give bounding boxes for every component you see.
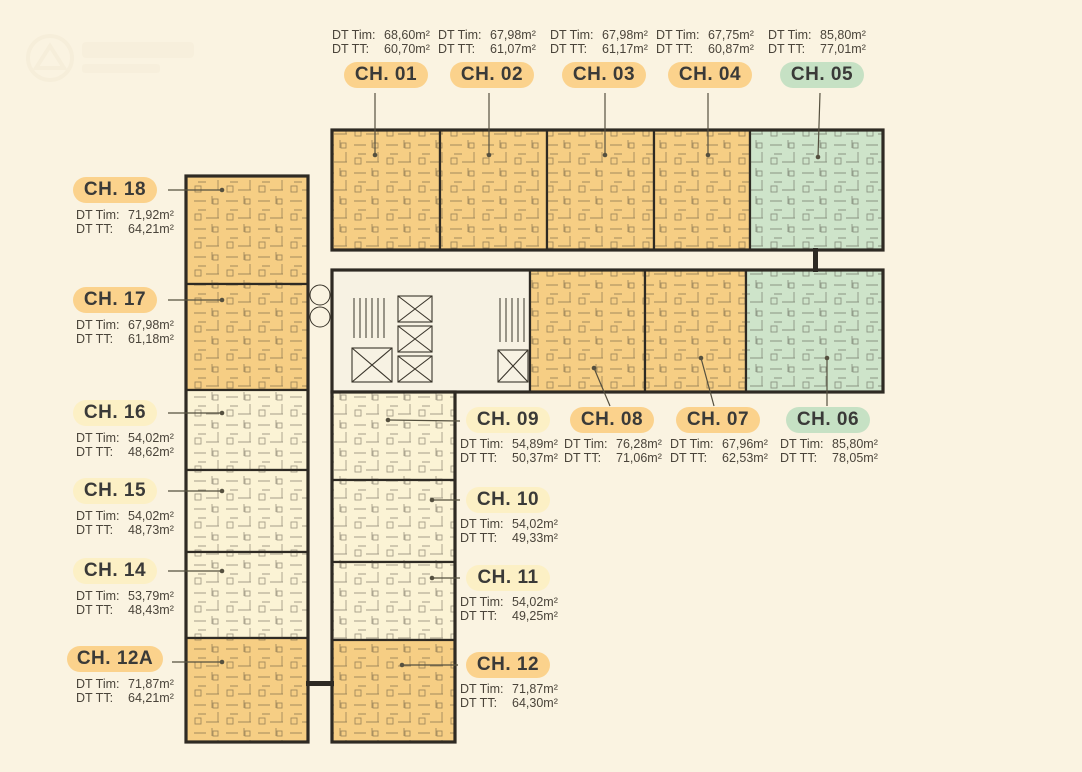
area-key: DT Tim: [76,677,128,691]
unit-areas: DT Tim:54,02m² DT TT:48,62m² [76,431,168,459]
wing-top [332,130,883,250]
area-key: DT TT: [76,603,128,617]
area-key: DT Tim: [780,437,832,451]
area-value: 67,75m² [708,28,754,42]
unit-areas: DT Tim:71,87m² DT TT:64,21m² [76,677,168,705]
unit-areas: DT Tim:54,02m² DT TT:49,25m² [460,595,558,623]
unit-badge-ch04[interactable]: CH. 04 [668,62,752,88]
unit-areas: DT Tim:67,98m² DT TT:61,07m² [438,28,548,56]
unit-label-ch14: CH. 14 DT Tim:53,79m² DT TT:48,43m² [62,558,168,617]
unit-badge-ch17[interactable]: CH. 17 [73,287,157,313]
unit-areas: DT Tim:71,92m² DT TT:64,21m² [76,208,168,236]
area-key: DT TT: [438,42,490,56]
area-value: 64,21m² [128,691,174,705]
area-key: DT TT: [460,696,512,710]
area-key: DT Tim: [656,28,708,42]
area-key: DT Tim: [768,28,820,42]
area-key: DT TT: [76,691,128,705]
area-key: DT Tim: [76,509,128,523]
unit-label-ch02: DT Tim:67,98m² DT TT:61,07m² CH. 02 [436,28,548,88]
area-value: 61,07m² [490,42,536,56]
unit-badge-ch09[interactable]: CH. 09 [466,407,550,433]
unit-areas: DT Tim:67,98m² DT TT:61,18m² [76,318,168,346]
area-key: DT Tim: [460,517,512,531]
area-key: DT TT: [670,451,722,465]
unit-label-ch09: CH. 09 DT Tim:54,89m² DT TT:50,37m² [458,407,558,465]
unit-badge-ch16[interactable]: CH. 16 [73,400,157,426]
floorplan-page: DT Tim:68,60m² DT TT:60,70m² CH. 01 DT T… [0,0,1082,772]
unit-badge-ch12[interactable]: CH. 12 [466,652,550,678]
area-value: 67,98m² [602,28,648,42]
wing-left [186,176,308,742]
unit-label-ch18: CH. 18 DT Tim:71,92m² DT TT:64,21m² [62,177,168,236]
area-value: 48,73m² [128,523,174,537]
area-value: 54,89m² [512,437,558,451]
unit-badge-ch14[interactable]: CH. 14 [73,558,157,584]
area-value: 48,62m² [128,445,174,459]
area-value: 53,79m² [128,589,174,603]
area-key: DT Tim: [76,431,128,445]
area-key: DT TT: [550,42,602,56]
area-value: 54,02m² [128,431,174,445]
area-key: DT TT: [460,609,512,623]
unit-badge-ch18[interactable]: CH. 18 [73,177,157,203]
mid-strip-detail [530,270,883,392]
area-key: DT TT: [564,451,616,465]
area-value: 60,70m² [384,42,430,56]
unit-label-ch05: DT Tim:85,80m² DT TT:77,01m² CH. 05 [766,28,878,88]
wing-connector [306,681,334,686]
area-value: 76,28m² [616,437,662,451]
unit-label-ch04: DT Tim:67,75m² DT TT:60,87m² CH. 04 [654,28,766,88]
area-value: 49,25m² [512,609,558,623]
area-key: DT TT: [76,332,128,346]
unit-label-ch16: CH. 16 DT Tim:54,02m² DT TT:48,62m² [62,400,168,459]
area-key: DT TT: [76,523,128,537]
unit-badge-ch15[interactable]: CH. 15 [73,478,157,504]
area-value: 71,92m² [128,208,174,222]
unit-label-ch17: CH. 17 DT Tim:67,98m² DT TT:61,18m² [62,287,168,346]
unit-badge-ch08[interactable]: CH. 08 [570,407,654,433]
area-value: 49,33m² [512,531,558,545]
area-value: 48,43m² [128,603,174,617]
unit-label-ch08: CH. 08 DT Tim:76,28m² DT TT:71,06m² [562,407,662,465]
area-value: 61,17m² [602,42,648,56]
unit-label-ch12a: CH. 12A DT Tim:71,87m² DT TT:64,21m² [62,646,168,705]
door-arc [310,307,330,327]
area-value: 78,05m² [832,451,878,465]
area-key: DT Tim: [76,318,128,332]
area-value: 77,01m² [820,42,866,56]
unit-label-ch07: CH. 07 DT Tim:67,96m² DT TT:62,53m² [668,407,768,465]
area-key: DT TT: [76,222,128,236]
unit-badge-ch05[interactable]: CH. 05 [780,62,864,88]
area-value: 64,21m² [128,222,174,236]
unit-label-ch12: CH. 12 DT Tim:71,87m² DT TT:64,30m² [458,652,558,710]
area-value: 54,02m² [128,509,174,523]
area-value: 54,02m² [512,595,558,609]
door-arc [310,285,330,305]
unit-areas: DT Tim:76,28m² DT TT:71,06m² [564,437,662,465]
area-value: 50,37m² [512,451,558,465]
unit-areas: DT Tim:54,89m² DT TT:50,37m² [460,437,558,465]
area-key: DT Tim: [550,28,602,42]
unit-badge-ch12a[interactable]: CH. 12A [67,646,163,672]
area-key: DT TT: [76,445,128,459]
unit-label-ch10: CH. 10 DT Tim:54,02m² DT TT:49,33m² [458,487,558,545]
unit-badge-ch10[interactable]: CH. 10 [466,487,550,513]
wing-middle [332,392,455,742]
unit-label-ch06: CH. 06 DT Tim:85,80m² DT TT:78,05m² [778,407,878,465]
unit-areas: DT Tim:67,98m² DT TT:61,17m² [550,28,660,56]
area-key: DT Tim: [76,589,128,603]
area-key: DT TT: [460,531,512,545]
area-value: 67,96m² [722,437,768,451]
area-key: DT Tim: [332,28,384,42]
area-key: DT TT: [332,42,384,56]
unit-badge-ch03[interactable]: CH. 03 [562,62,646,88]
wing-mid-strip [332,270,883,392]
area-value: 67,98m² [490,28,536,42]
unit-areas: DT Tim:71,87m² DT TT:64,30m² [460,682,558,710]
area-value: 54,02m² [512,517,558,531]
unit-label-ch03: DT Tim:67,98m² DT TT:61,17m² CH. 03 [548,28,660,88]
area-value: 60,87m² [708,42,754,56]
unit-areas: DT Tim:85,80m² DT TT:77,01m² [768,28,878,56]
area-value: 64,30m² [512,696,558,710]
unit-label-ch15: CH. 15 DT Tim:54,02m² DT TT:48,73m² [62,478,168,537]
area-value: 67,98m² [128,318,174,332]
area-value: 85,80m² [832,437,878,451]
unit-badge-ch02[interactable]: CH. 02 [450,62,534,88]
area-key: DT TT: [460,451,512,465]
area-key: DT TT: [780,451,832,465]
wing-left-detail [186,176,308,742]
unit-areas: DT Tim:53,79m² DT TT:48,43m² [76,589,168,617]
area-key: DT Tim: [460,437,512,451]
unit-badge-ch01[interactable]: CH. 01 [344,62,428,88]
area-key: DT TT: [768,42,820,56]
unit-badge-ch07[interactable]: CH. 07 [676,407,760,433]
area-key: DT Tim: [76,208,128,222]
unit-badge-ch06[interactable]: CH. 06 [786,407,870,433]
area-key: DT TT: [656,42,708,56]
area-value: 71,87m² [512,682,558,696]
unit-areas: DT Tim:67,75m² DT TT:60,87m² [656,28,766,56]
area-value: 61,18m² [128,332,174,346]
unit-areas: DT Tim:85,80m² DT TT:78,05m² [780,437,878,465]
unit-label-ch11: CH. 11 DT Tim:54,02m² DT TT:49,25m² [458,565,558,623]
unit-areas: DT Tim:54,02m² DT TT:48,73m² [76,509,168,537]
unit-areas: DT Tim:54,02m² DT TT:49,33m² [460,517,558,545]
unit-areas: DT Tim:67,96m² DT TT:62,53m² [670,437,768,465]
area-key: DT Tim: [460,595,512,609]
wing-middle-detail [332,392,455,742]
strip-connector [813,248,818,272]
area-value: 71,87m² [128,677,174,691]
area-key: DT Tim: [670,437,722,451]
area-value: 85,80m² [820,28,866,42]
area-value: 68,60m² [384,28,430,42]
area-value: 62,53m² [722,451,768,465]
unit-badge-ch11[interactable]: CH. 11 [466,565,550,591]
area-key: DT Tim: [460,682,512,696]
area-value: 71,06m² [616,451,662,465]
area-key: DT Tim: [438,28,490,42]
unit-areas: DT Tim:68,60m² DT TT:60,70m² [332,28,442,56]
wing-top-detail [332,130,883,250]
area-key: DT Tim: [564,437,616,451]
unit-label-ch01: DT Tim:68,60m² DT TT:60,70m² CH. 01 [330,28,442,88]
